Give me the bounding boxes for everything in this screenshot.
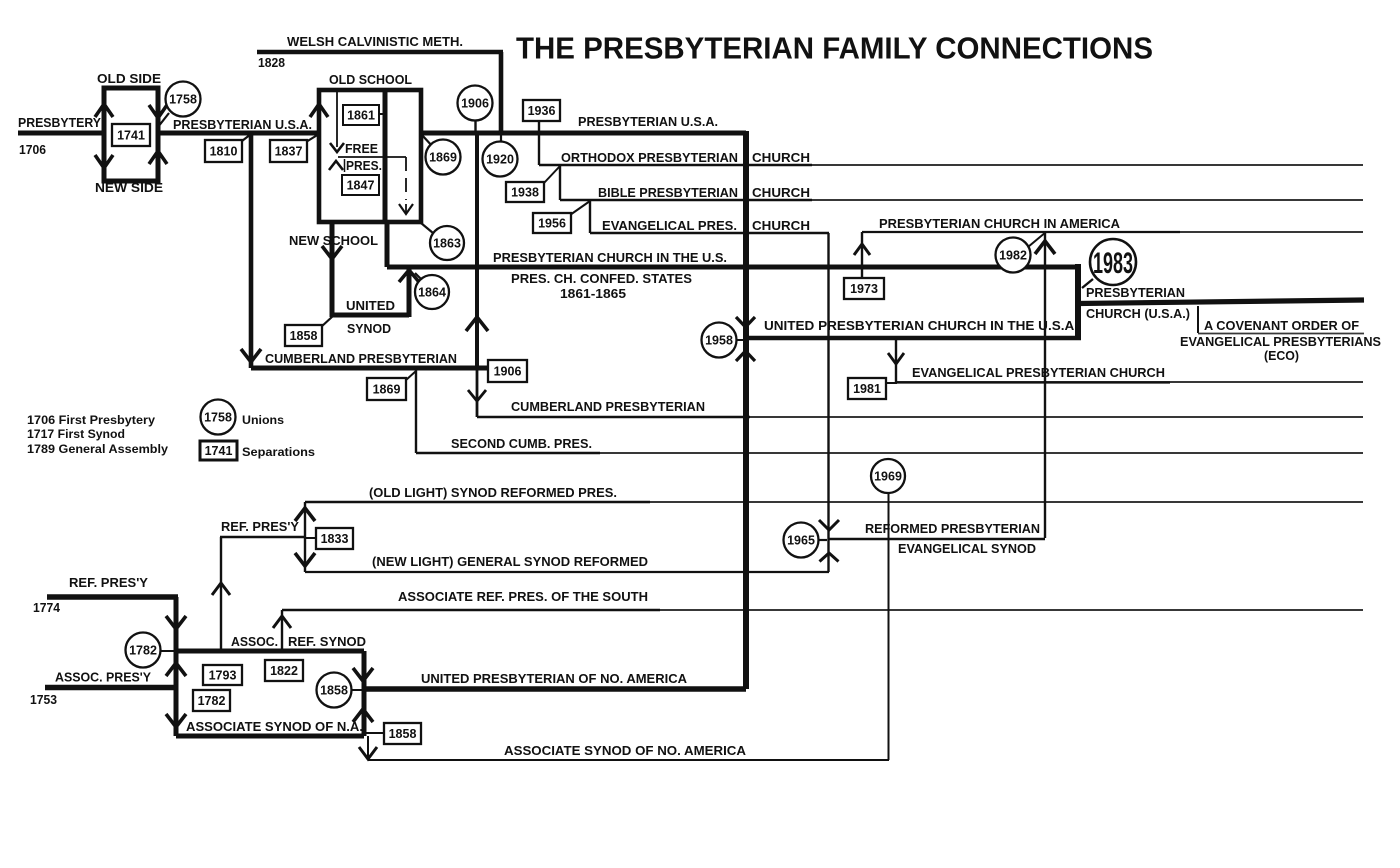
svg-text:1706: 1706: [19, 142, 46, 157]
svg-text:Separations: Separations: [242, 447, 315, 459]
svg-text:1858: 1858: [290, 329, 318, 343]
svg-text:1741: 1741: [117, 129, 145, 143]
svg-text:CHURCH: CHURCH: [752, 219, 810, 233]
svg-text:PRESBYTERIAN U.S.A.: PRESBYTERIAN U.S.A.: [173, 118, 312, 132]
svg-text:1758: 1758: [169, 93, 197, 107]
svg-text:REF. PRES'Y: REF. PRES'Y: [69, 576, 149, 590]
svg-text:1858: 1858: [389, 727, 417, 741]
svg-text:1833: 1833: [321, 532, 349, 546]
svg-text:ASSOCIATE REF. PRES. OF THE SO: ASSOCIATE REF. PRES. OF THE SOUTH: [398, 590, 648, 604]
svg-text:EVANGELICAL PRESBYTERIAN CHURC: EVANGELICAL PRESBYTERIAN CHURCH: [912, 366, 1165, 380]
svg-text:UNITED PRESBYTERIAN OF NO. AME: UNITED PRESBYTERIAN OF NO. AMERICA: [421, 672, 687, 686]
svg-text:ASSOC.: ASSOC.: [231, 635, 278, 649]
svg-text:(OLD LIGHT) SYNOD REFORMED PRE: (OLD LIGHT) SYNOD REFORMED PRES.: [369, 486, 617, 500]
svg-text:1847: 1847: [347, 179, 375, 193]
svg-text:1920: 1920: [486, 153, 514, 167]
svg-text:CUMBERLAND PRESBYTERIAN: CUMBERLAND PRESBYTERIAN: [511, 400, 705, 414]
svg-text:(ECO): (ECO): [1264, 349, 1299, 363]
svg-text:PRESBYTERY: PRESBYTERY: [18, 116, 102, 130]
svg-text:1822: 1822: [270, 664, 298, 678]
svg-text:PRESBYTERIAN: PRESBYTERIAN: [1086, 286, 1185, 300]
svg-text:PRES. CH. CONFED. STATES: PRES. CH. CONFED. STATES: [511, 272, 692, 286]
svg-text:1706 First Presbytery: 1706 First Presbytery: [27, 415, 156, 427]
svg-text:OLD SIDE: OLD SIDE: [97, 72, 161, 86]
svg-text:OLD SCHOOL: OLD SCHOOL: [329, 73, 412, 87]
svg-text:THE PRESBYTERIAN FAMILY CONNEC: THE PRESBYTERIAN FAMILY CONNECTIONS: [516, 32, 1153, 66]
svg-text:1789 General Assembly: 1789 General Assembly: [27, 444, 169, 456]
svg-text:1861-1865: 1861-1865: [560, 286, 626, 301]
svg-text:1982: 1982: [999, 249, 1027, 263]
svg-text:1869: 1869: [429, 151, 457, 165]
svg-text:1973: 1973: [850, 282, 878, 296]
svg-text:ASSOCIATE SYNOD OF N.A.: ASSOCIATE SYNOD OF N.A.: [186, 720, 363, 734]
svg-text:1717 First Synod: 1717 First Synod: [27, 429, 125, 441]
svg-text:1758: 1758: [204, 411, 232, 425]
svg-text:(NEW LIGHT) GENERAL SYNOD REFO: (NEW LIGHT) GENERAL SYNOD REFORMED: [372, 555, 648, 569]
svg-text:1864: 1864: [418, 286, 446, 300]
svg-text:EVANGELICAL PRES.: EVANGELICAL PRES.: [602, 219, 737, 233]
svg-text:1906: 1906: [494, 365, 522, 379]
svg-text:1828: 1828: [258, 55, 285, 70]
svg-text:NEW SIDE: NEW SIDE: [95, 181, 163, 195]
svg-text:1956: 1956: [538, 217, 566, 231]
svg-text:UNITED: UNITED: [346, 299, 395, 313]
svg-text:SYNOD: SYNOD: [347, 322, 391, 336]
svg-text:1861: 1861: [347, 109, 375, 123]
svg-text:1981: 1981: [853, 382, 881, 396]
svg-text:PRES.: PRES.: [346, 159, 382, 173]
svg-text:WELSH CALVINISTIC METH.: WELSH CALVINISTIC METH.: [287, 35, 463, 49]
svg-text:EVANGELICAL PRESBYTERIANS: EVANGELICAL PRESBYTERIANS: [1180, 335, 1381, 349]
svg-text:REF. PRES'Y: REF. PRES'Y: [221, 520, 300, 534]
svg-text:SECOND CUMB. PRES.: SECOND CUMB. PRES.: [451, 437, 592, 451]
svg-text:BIBLE PRESBYTERIAN: BIBLE PRESBYTERIAN: [598, 186, 738, 200]
svg-text:CHURCH: CHURCH: [752, 151, 810, 165]
svg-text:1858: 1858: [320, 684, 348, 698]
svg-text:UNITED PRESBYTERIAN CHURCH IN: UNITED PRESBYTERIAN CHURCH IN THE U.S.A.: [764, 319, 1078, 333]
svg-text:1938: 1938: [511, 186, 539, 200]
svg-text:1810: 1810: [210, 145, 238, 159]
svg-text:A COVENANT ORDER OF: A COVENANT ORDER OF: [1204, 319, 1359, 333]
svg-text:1793: 1793: [209, 669, 237, 683]
svg-text:1958: 1958: [705, 334, 733, 348]
svg-text:REFORMED PRESBYTERIAN: REFORMED PRESBYTERIAN: [865, 522, 1040, 536]
svg-text:NEW SCHOOL: NEW SCHOOL: [289, 234, 378, 248]
svg-text:ASSOC. PRES'Y: ASSOC. PRES'Y: [55, 671, 152, 685]
svg-text:PRESBYTERIAN CHURCH IN AMERICA: PRESBYTERIAN CHURCH IN AMERICA: [879, 217, 1120, 231]
svg-text:1869: 1869: [373, 383, 401, 397]
svg-text:1983: 1983: [1093, 247, 1133, 280]
svg-text:1753: 1753: [30, 692, 57, 707]
svg-text:PRESBYTERIAN U.S.A.: PRESBYTERIAN U.S.A.: [578, 115, 718, 129]
svg-text:1936: 1936: [528, 104, 556, 118]
svg-text:1906: 1906: [461, 97, 489, 111]
svg-text:CUMBERLAND PRESBYTERIAN: CUMBERLAND PRESBYTERIAN: [265, 352, 457, 366]
svg-text:1782: 1782: [129, 644, 157, 658]
svg-text:CHURCH: CHURCH: [752, 186, 810, 200]
svg-text:Unions: Unions: [242, 415, 284, 427]
svg-text:REF. SYNOD: REF. SYNOD: [288, 635, 366, 649]
svg-text:PRESBYTERIAN CHURCH IN THE U.S: PRESBYTERIAN CHURCH IN THE U.S.: [493, 251, 727, 265]
svg-text:CHURCH (U.S.A.): CHURCH (U.S.A.): [1086, 307, 1190, 321]
svg-text:1837: 1837: [275, 145, 303, 159]
svg-text:EVANGELICAL SYNOD: EVANGELICAL SYNOD: [898, 542, 1036, 556]
svg-text:1741: 1741: [205, 444, 233, 458]
svg-text:1782: 1782: [198, 694, 226, 708]
svg-text:1863: 1863: [433, 237, 461, 251]
svg-text:1969: 1969: [874, 470, 902, 484]
svg-text:1965: 1965: [787, 534, 815, 548]
svg-text:ORTHODOX PRESBYTERIAN: ORTHODOX PRESBYTERIAN: [561, 151, 738, 165]
svg-text:FREE: FREE: [345, 142, 378, 156]
svg-text:ASSOCIATE SYNOD OF NO. AMERIC: ASSOCIATE SYNOD OF NO. AMERICA: [504, 744, 746, 758]
svg-text:1774: 1774: [33, 600, 61, 615]
